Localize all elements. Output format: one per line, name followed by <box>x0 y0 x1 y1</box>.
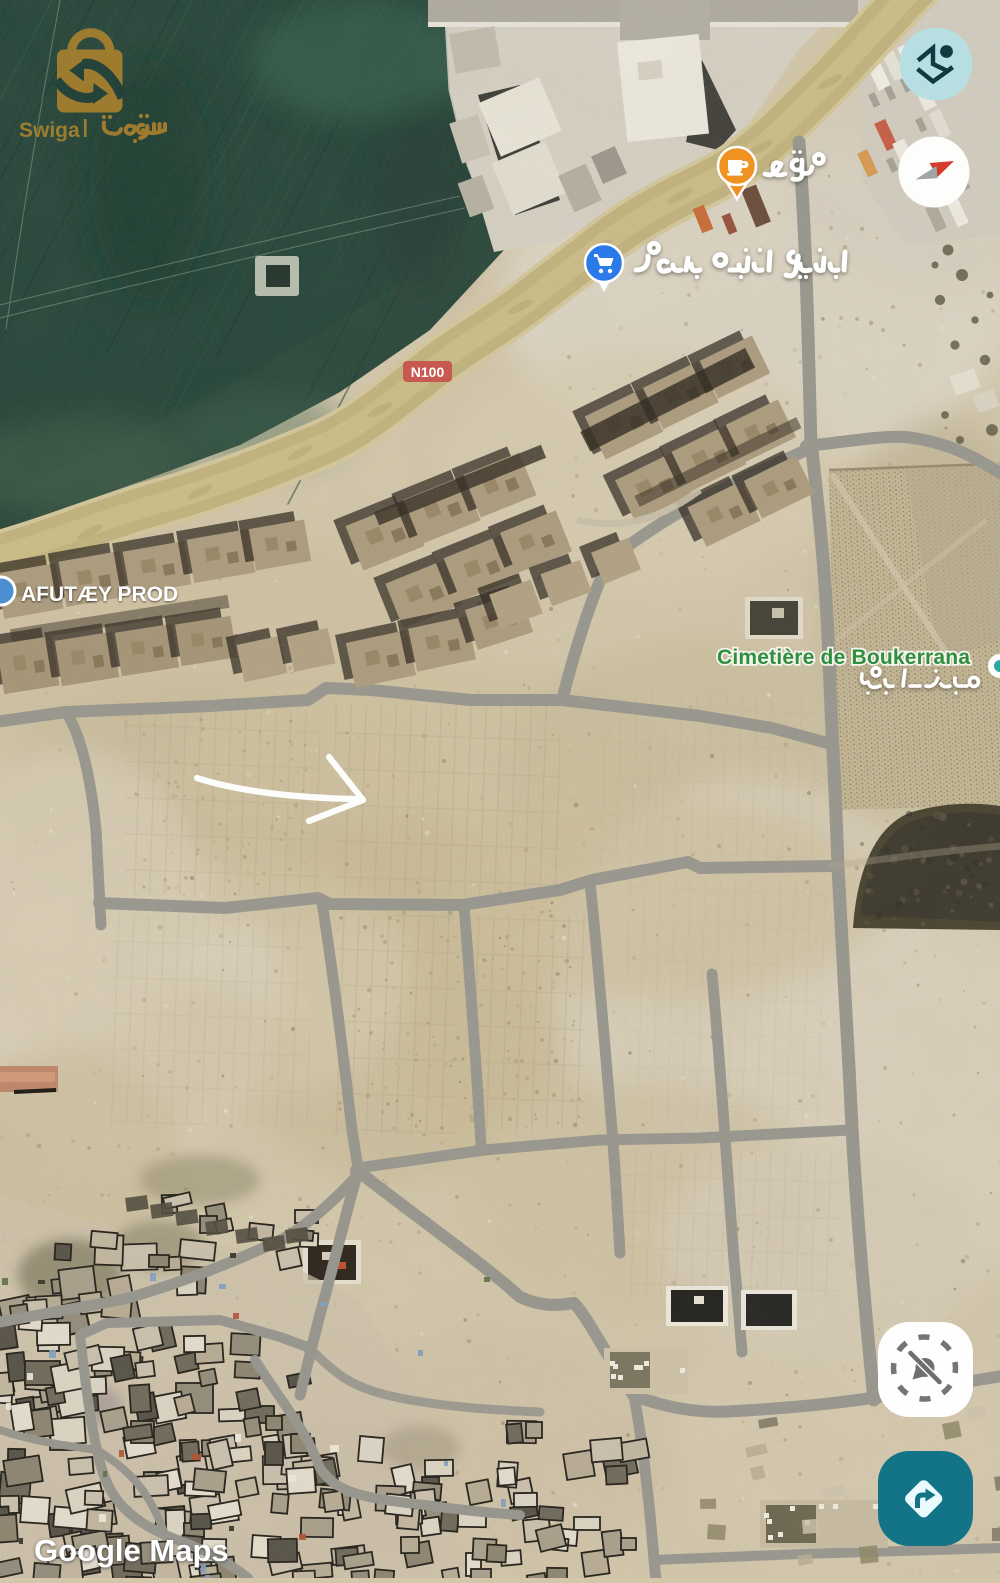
svg-text:Cimetière de Boukerrana: Cimetière de Boukerrana <box>717 646 970 669</box>
svg-text:Google Maps: Google Maps <box>34 1533 229 1568</box>
svg-text:Swiga: Swiga <box>19 119 80 142</box>
svg-text:AFUTÆY PROD: AFUTÆY PROD <box>21 583 178 606</box>
svg-text:N100: N100 <box>411 364 445 380</box>
